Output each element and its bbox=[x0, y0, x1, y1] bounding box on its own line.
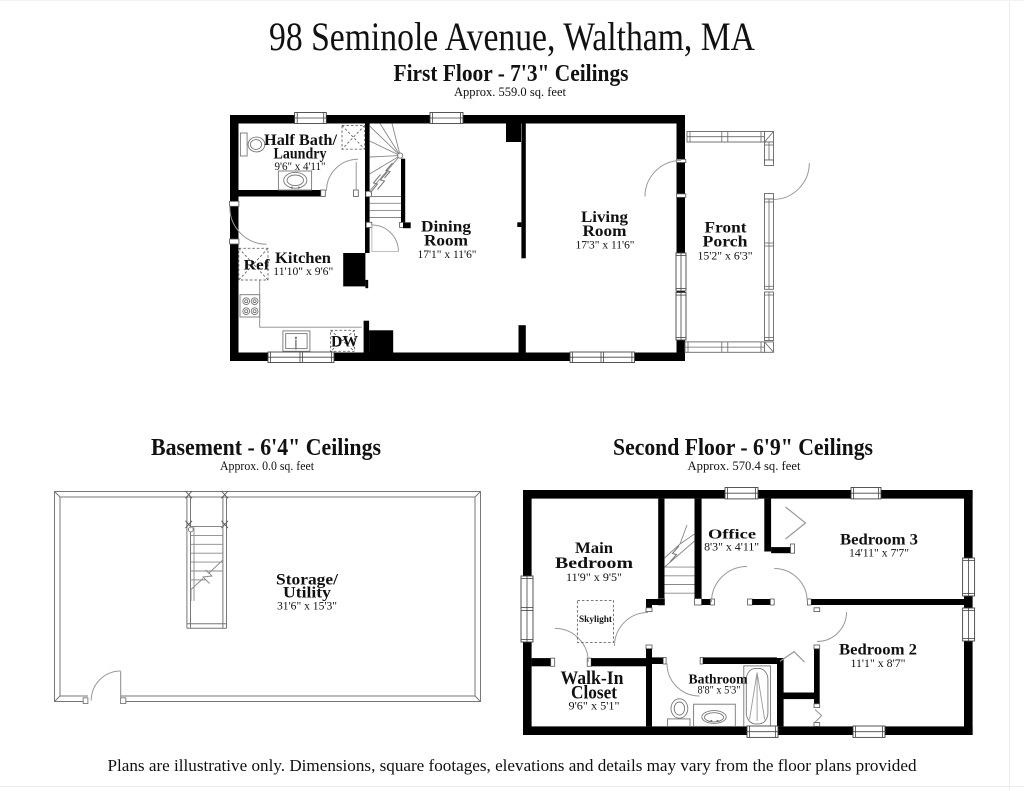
svg-text:11'1" x 8'7": 11'1" x 8'7" bbox=[851, 656, 906, 670]
svg-text:9'6" x 5'1": 9'6" x 5'1" bbox=[569, 699, 620, 713]
svg-text:8'3" x 4'11": 8'3" x 4'11" bbox=[704, 540, 759, 554]
svg-text:DW: DW bbox=[331, 334, 358, 351]
svg-text:8'8" x 5'3": 8'8" x 5'3" bbox=[698, 685, 741, 697]
svg-text:Ref: Ref bbox=[244, 258, 270, 274]
svg-text:Skylight: Skylight bbox=[579, 615, 613, 625]
svg-text:98 Seminole Avenue, Waltham, M: 98 Seminole Avenue, Waltham, MA bbox=[269, 14, 755, 59]
svg-text:Plans are illustrative only. D: Plans are illustrative only. Dimensions,… bbox=[108, 756, 917, 775]
svg-text:11'9" x 9'5": 11'9" x 9'5" bbox=[566, 570, 622, 584]
svg-text:Approx. 559.0 sq. feet: Approx. 559.0 sq. feet bbox=[454, 84, 566, 99]
svg-text:17'3" x 11'6": 17'3" x 11'6" bbox=[576, 238, 635, 252]
svg-text:15'2" x 6'3": 15'2" x 6'3" bbox=[698, 249, 753, 263]
svg-text:Approx. 0.0 sq. feet: Approx. 0.0 sq. feet bbox=[220, 458, 314, 473]
svg-text:11'10" x 9'6": 11'10" x 9'6" bbox=[273, 264, 333, 278]
svg-text:Approx. 570.4 sq. feet: Approx. 570.4 sq. feet bbox=[688, 458, 801, 473]
svg-text:14'11" x 7'7": 14'11" x 7'7" bbox=[849, 546, 909, 560]
svg-text:31'6" x 15'3": 31'6" x 15'3" bbox=[277, 599, 337, 613]
svg-text:9'6" x 4'11": 9'6" x 4'11" bbox=[275, 159, 326, 173]
svg-text:17'1" x 11'6": 17'1" x 11'6" bbox=[418, 247, 477, 261]
